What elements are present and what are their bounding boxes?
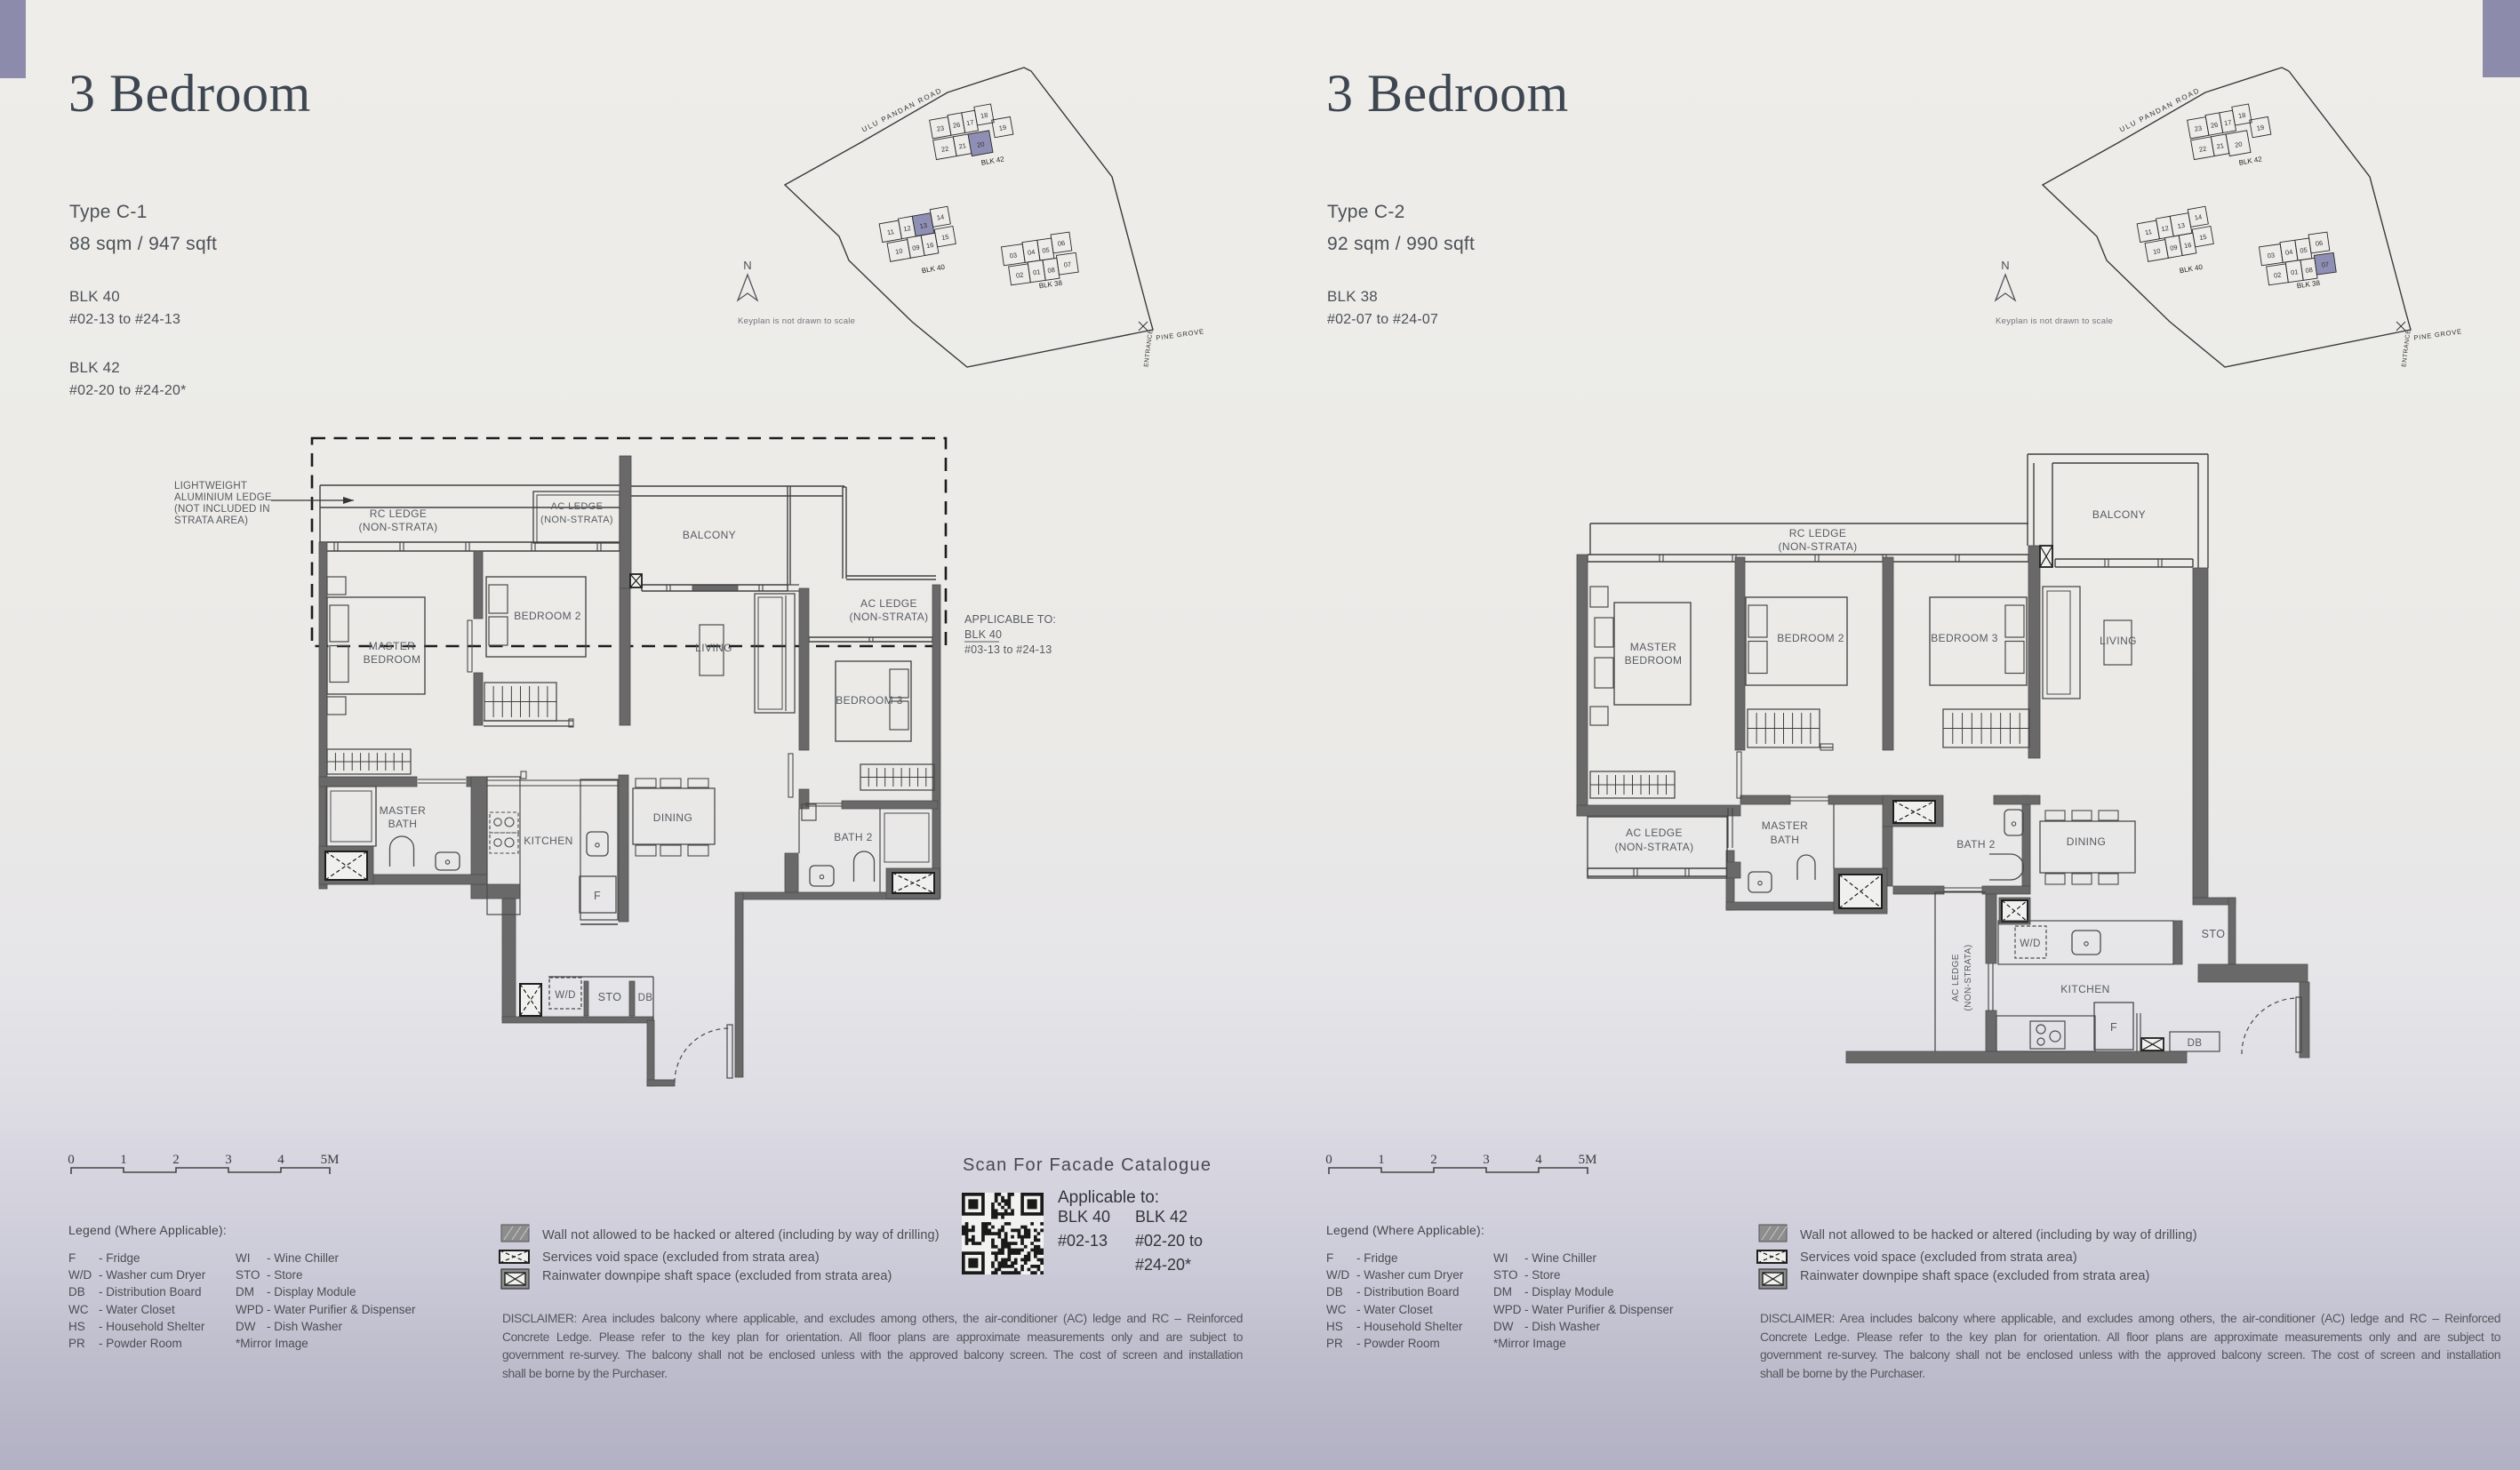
svg-text:1: 1 [120, 1153, 127, 1167]
svg-text:0: 0 [68, 1153, 75, 1167]
svg-text:06: 06 [2315, 239, 2324, 248]
svg-text:BEDROOM 2: BEDROOM 2 [514, 610, 581, 622]
svg-text:04: 04 [2284, 248, 2293, 257]
svg-text:KITCHEN: KITCHEN [524, 835, 572, 847]
svg-text:01: 01 [2291, 268, 2300, 276]
svg-text:ENTRANCE: ENTRANCE [2401, 329, 2412, 367]
svg-text:20: 20 [976, 140, 985, 149]
svg-text:2: 2 [1430, 1153, 1437, 1167]
svg-text:1: 1 [1378, 1153, 1385, 1167]
svg-text:PINE GROVE: PINE GROVE [2413, 327, 2462, 342]
svg-text:APPLICABLE TO:: APPLICABLE TO: [964, 613, 1056, 626]
svg-text:W/D: W/D [555, 990, 576, 1001]
svg-text:DB: DB [638, 993, 653, 1003]
svg-text:07: 07 [2321, 260, 2330, 269]
svg-text:DB: DB [2188, 1038, 2203, 1049]
svg-text:09: 09 [912, 244, 921, 252]
svg-text:BALCONY: BALCONY [683, 529, 736, 541]
svg-text:23: 23 [2194, 124, 2203, 132]
svg-text:N: N [2001, 259, 2009, 272]
svg-text:21: 21 [2216, 141, 2225, 150]
svg-text:03: 03 [1009, 251, 1018, 260]
svg-text:AC LEDGE: AC LEDGE [1626, 827, 1683, 839]
svg-text:BEDROOM: BEDROOM [364, 653, 421, 666]
svg-text:07: 07 [1063, 260, 1072, 269]
svg-text:BATH 2: BATH 2 [1956, 838, 1996, 851]
svg-text:10: 10 [894, 247, 903, 256]
svg-text:Keyplan is not drawn to scale: Keyplan is not drawn to scale [738, 316, 855, 326]
svg-text:BALCONY: BALCONY [2092, 508, 2146, 521]
svg-text:4: 4 [1535, 1153, 1542, 1167]
svg-text:KITCHEN: KITCHEN [2060, 983, 2109, 995]
svg-text:ULU PANDAN ROAD: ULU PANDAN ROAD [2118, 86, 2201, 134]
svg-text:14: 14 [2194, 212, 2203, 221]
svg-text:DINING: DINING [653, 811, 692, 824]
svg-text:MASTER: MASTER [1630, 641, 1676, 653]
svg-text:22: 22 [940, 145, 949, 154]
svg-text:RC LEDGE: RC LEDGE [1789, 527, 1847, 539]
svg-text:11: 11 [886, 228, 894, 236]
svg-text:MASTER: MASTER [1762, 819, 1808, 832]
svg-text:BATH: BATH [1771, 834, 1800, 846]
svg-text:MASTER: MASTER [380, 804, 426, 817]
svg-text:ALUMINIUM LEDGE: ALUMINIUM LEDGE [174, 492, 272, 503]
svg-text:LIVING: LIVING [695, 642, 732, 654]
svg-text:ULU PANDAN ROAD: ULU PANDAN ROAD [860, 86, 943, 134]
svg-text:15: 15 [940, 233, 949, 242]
svg-text:5M: 5M [1579, 1153, 1597, 1167]
svg-text:BLK 40: BLK 40 [964, 628, 1002, 641]
svg-text:01: 01 [1033, 268, 1042, 276]
svg-text:08: 08 [2305, 266, 2314, 275]
svg-text:BEDROOM 3: BEDROOM 3 [1931, 632, 1998, 644]
svg-text:N: N [743, 259, 751, 272]
svg-text:26: 26 [2210, 121, 2219, 130]
svg-text:AC LEDGE: AC LEDGE [1951, 954, 1961, 1002]
svg-text:BLK 40: BLK 40 [2179, 263, 2204, 276]
svg-text:3: 3 [225, 1153, 232, 1167]
svg-text:04: 04 [1027, 248, 1036, 257]
svg-text:18: 18 [2237, 111, 2246, 120]
svg-text:(NON-STRATA): (NON-STRATA) [1614, 841, 1693, 853]
svg-text:06: 06 [1057, 239, 1066, 248]
svg-text:AC LEDGE: AC LEDGE [551, 501, 604, 512]
svg-text:05: 05 [1042, 246, 1051, 255]
svg-text:15: 15 [2198, 233, 2207, 242]
svg-text:19: 19 [2256, 124, 2265, 132]
svg-text:2: 2 [172, 1153, 180, 1167]
svg-text:BLK 42: BLK 42 [980, 155, 1005, 167]
svg-text:(NON-STRATA): (NON-STRATA) [1778, 540, 1857, 553]
svg-text:BLK 40: BLK 40 [921, 263, 946, 276]
svg-text:17: 17 [965, 118, 974, 127]
svg-text:LIVING: LIVING [2100, 635, 2137, 647]
svg-text:Keyplan is not drawn to scale: Keyplan is not drawn to scale [1996, 316, 2113, 326]
svg-text:MASTER: MASTER [369, 640, 415, 652]
svg-text:10: 10 [2152, 247, 2161, 256]
svg-text:BATH 2: BATH 2 [834, 831, 873, 843]
svg-text:(NON-STRATA): (NON-STRATA) [540, 515, 613, 525]
svg-text:22: 22 [2198, 145, 2207, 154]
svg-text:16: 16 [925, 241, 934, 250]
svg-text:13: 13 [2177, 221, 2186, 230]
svg-text:AC LEDGE: AC LEDGE [860, 597, 917, 610]
svg-text:20: 20 [2234, 140, 2243, 149]
svg-text:19: 19 [998, 124, 1007, 132]
svg-text:17: 17 [2223, 118, 2232, 127]
svg-text:5M: 5M [321, 1153, 340, 1167]
svg-text:BATH: BATH [388, 818, 418, 830]
svg-text:BEDROOM: BEDROOM [1625, 654, 1683, 667]
svg-text:3: 3 [1483, 1153, 1490, 1167]
svg-text:02: 02 [1015, 271, 1024, 280]
svg-text:(NON-STRATA): (NON-STRATA) [1964, 945, 1973, 1011]
svg-text:02: 02 [2273, 271, 2282, 280]
svg-text:(NON-STRATA): (NON-STRATA) [849, 611, 928, 623]
svg-text:PINE GROVE: PINE GROVE [1156, 327, 1204, 342]
svg-text:STRATA AREA): STRATA AREA) [174, 515, 248, 526]
svg-text:(NON-STRATA): (NON-STRATA) [358, 521, 437, 533]
svg-text:13: 13 [919, 221, 928, 230]
svg-text:21: 21 [958, 141, 967, 150]
svg-text:26: 26 [952, 121, 961, 130]
svg-text:23: 23 [936, 124, 945, 132]
svg-text:0: 0 [1325, 1153, 1332, 1167]
svg-text:09: 09 [2170, 244, 2179, 252]
svg-text:ENTRANCE: ENTRANCE [1143, 329, 1154, 367]
svg-text:(NOT INCLUDED IN: (NOT INCLUDED IN [174, 504, 270, 515]
svg-text:STO: STO [598, 991, 622, 1003]
svg-text:BEDROOM 3: BEDROOM 3 [836, 694, 903, 707]
svg-text:BLK 42: BLK 42 [2238, 155, 2263, 167]
svg-text:05: 05 [2300, 246, 2308, 255]
svg-text:LIGHTWEIGHT: LIGHTWEIGHT [174, 481, 247, 491]
svg-text:08: 08 [1047, 266, 1056, 275]
svg-text:#03-13 to #24-13: #03-13 to #24-13 [964, 643, 1052, 656]
svg-text:14: 14 [936, 212, 945, 221]
svg-text:F: F [2110, 1021, 2117, 1034]
svg-text:RC LEDGE: RC LEDGE [370, 507, 428, 520]
svg-text:16: 16 [2183, 241, 2192, 250]
svg-text:F: F [594, 890, 601, 902]
svg-text:11: 11 [2144, 228, 2152, 236]
svg-text:12: 12 [903, 224, 912, 233]
svg-text:BEDROOM 2: BEDROOM 2 [1777, 632, 1844, 644]
svg-text:12: 12 [2161, 224, 2170, 233]
svg-text:03: 03 [2267, 251, 2276, 260]
svg-text:STO: STO [2202, 928, 2226, 940]
svg-text:W/D: W/D [2020, 939, 2041, 949]
svg-text:18: 18 [980, 111, 988, 120]
svg-text:DINING: DINING [2067, 835, 2106, 848]
svg-text:4: 4 [277, 1153, 284, 1167]
